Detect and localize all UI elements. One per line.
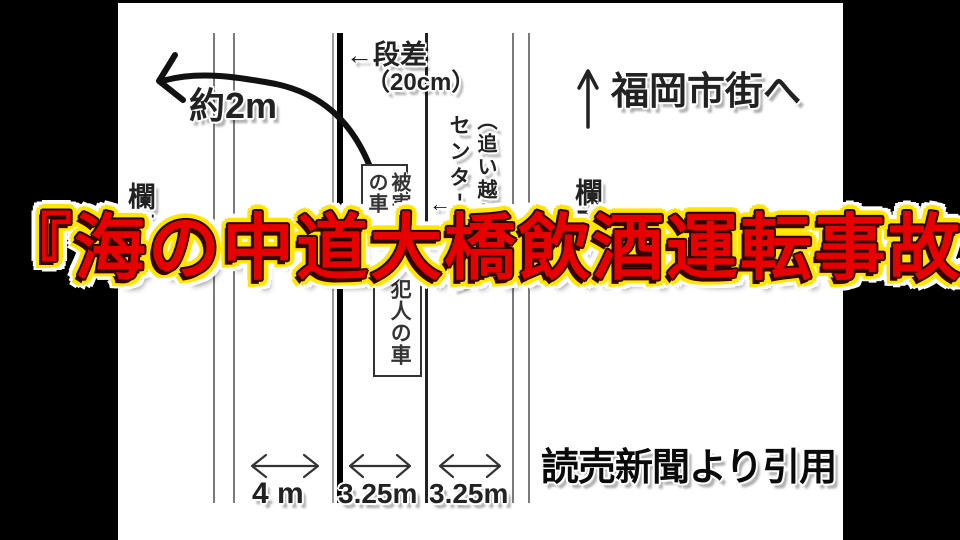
measure-arrow-left-icon <box>252 455 318 477</box>
destination-label: 福岡市街へ <box>611 73 801 111</box>
fall-distance-label: 約2m <box>189 88 277 124</box>
north-arrow-icon <box>579 71 597 127</box>
citation-label: 読売新聞より引用 <box>541 449 836 487</box>
lane-width-right-label: 3.25m <box>429 480 508 508</box>
letterbox-top-edge <box>0 0 960 3</box>
lane-width-middle-label: 3.25m <box>338 480 417 508</box>
video-frame: 被害者の車 犯人の車 ←段差 （20cm） 約2m 福岡市街へ 欄干 → ← 欄… <box>0 0 960 540</box>
video-title: 『海の中道大橋飲酒運転事故』 <box>0 205 960 291</box>
step-label: ←段差 <box>346 42 427 69</box>
step-size-label: （20cm） <box>366 71 475 95</box>
measure-arrow-middle-icon <box>350 455 410 477</box>
measure-arrow-right-icon <box>440 455 500 477</box>
lane-width-left-label: 4 m <box>252 479 304 509</box>
